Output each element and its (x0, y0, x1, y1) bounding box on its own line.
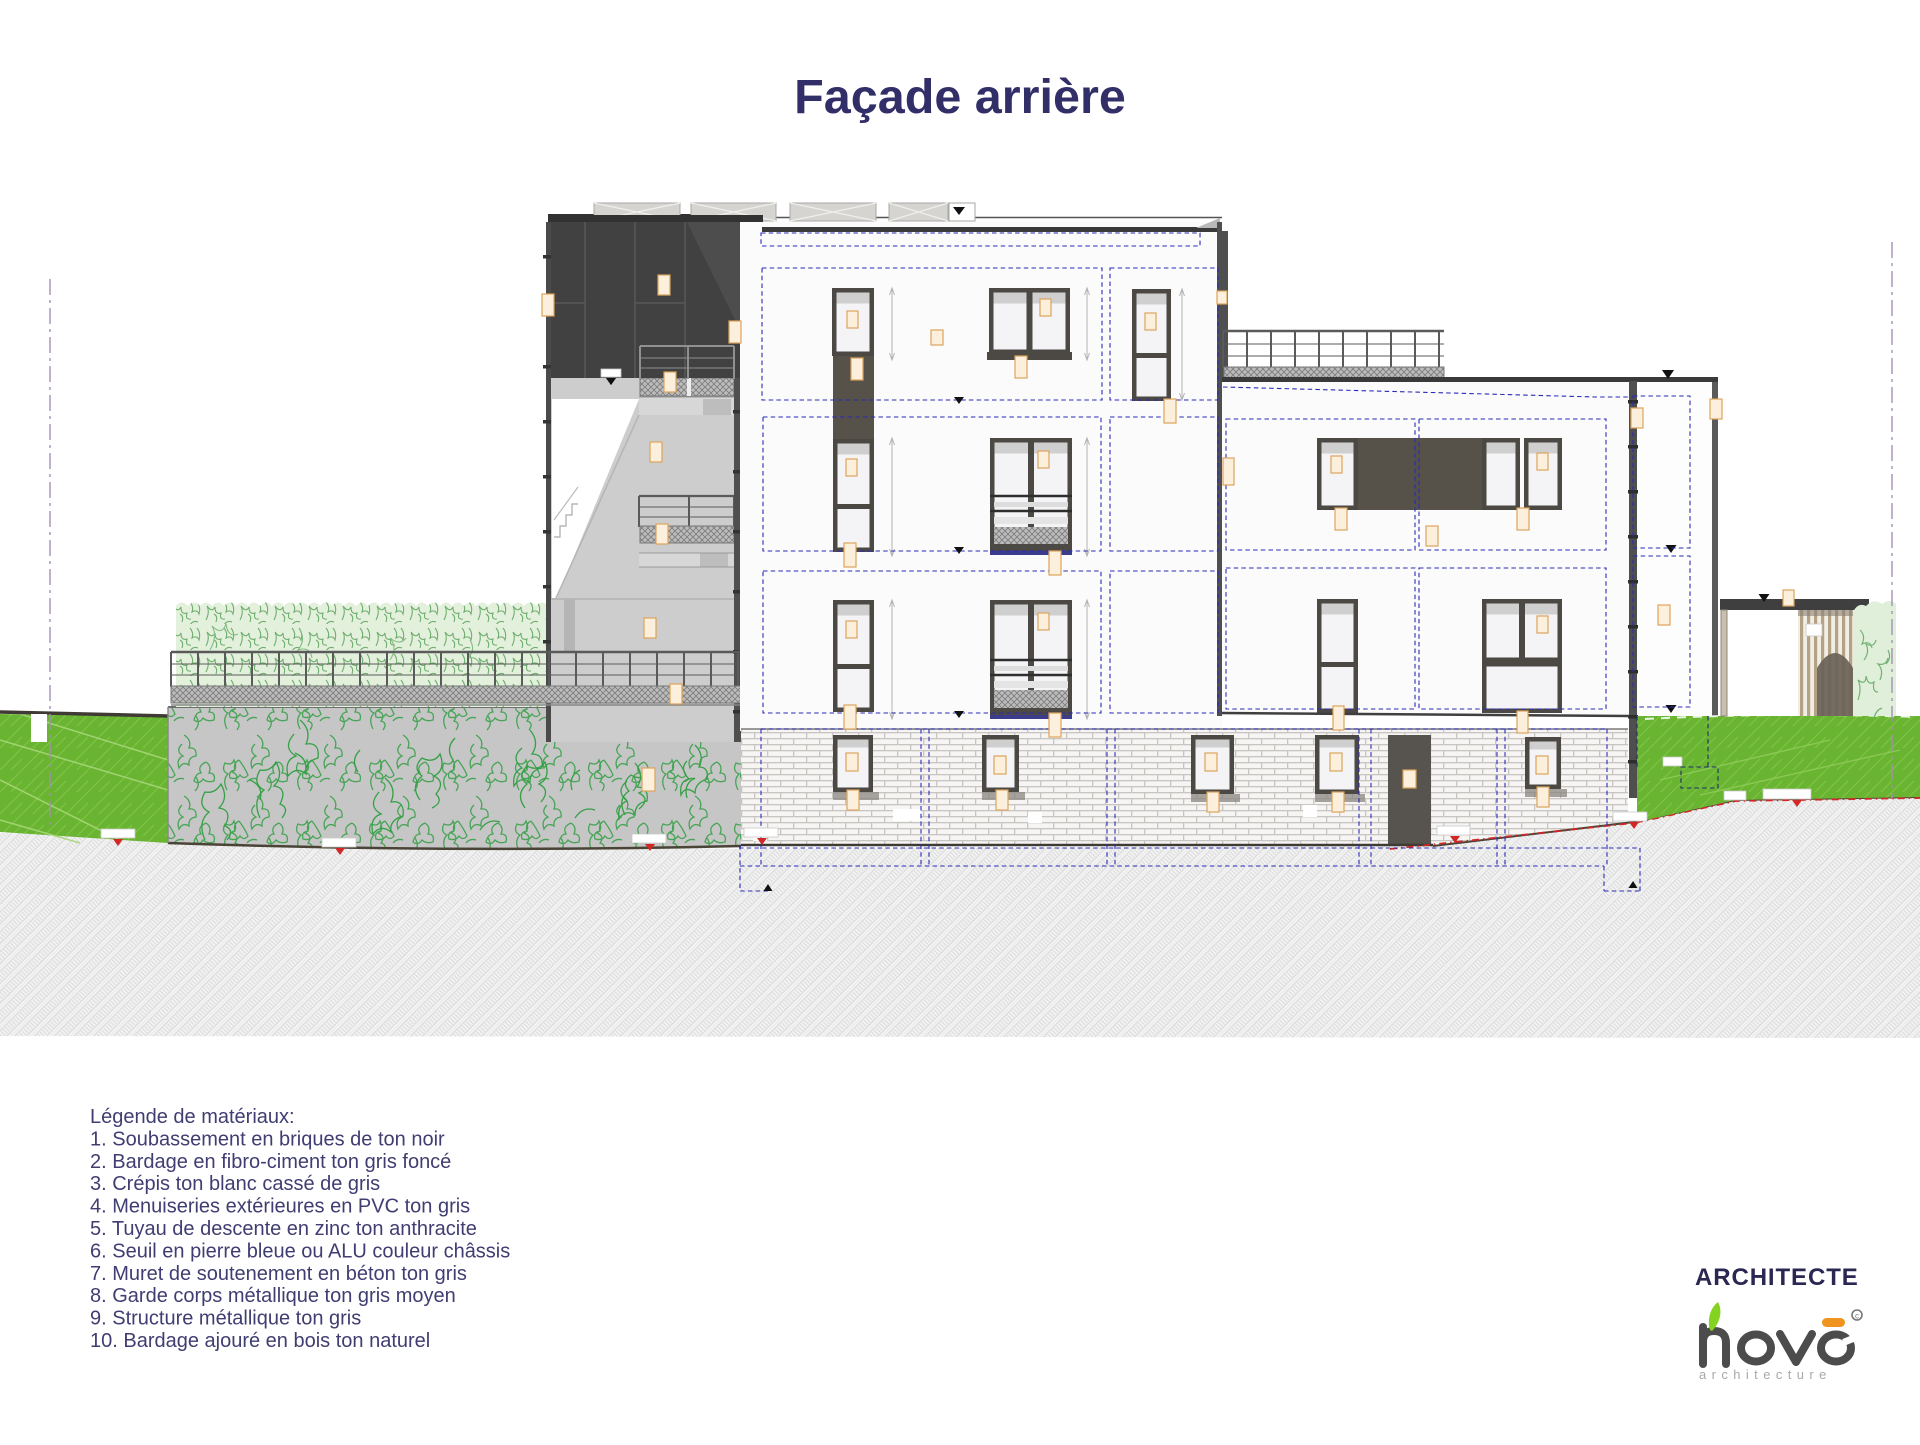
svg-text:7. Muret de soutenement en bét: 7. Muret de soutenement en béton ton gri… (90, 1263, 467, 1285)
svg-text:6. Seuil en pierre bleue ou AL: 6. Seuil en pierre bleue ou ALU couleur … (90, 1240, 510, 1262)
svg-text:5. Tuyau de descente en zinc t: 5. Tuyau de descente en zinc ton anthrac… (90, 1218, 477, 1240)
svg-text:10. Bardage ajouré en bois ton: 10. Bardage ajouré en bois ton naturel (90, 1330, 430, 1352)
svg-text:Légende de matériaux:: Légende de matériaux: (90, 1106, 295, 1128)
svg-text:4. Menuiseries extérieures en: 4. Menuiseries extérieures en PVC ton gr… (90, 1196, 470, 1218)
svg-text:2. Bardage en fibro-ciment ton: 2. Bardage en fibro-ciment ton gris fonc… (90, 1151, 451, 1173)
svg-text:8. Garde corps métallique ton: 8. Garde corps métallique ton gris moyen (90, 1285, 456, 1307)
svg-text:ARCHITECTE: ARCHITECTE (1695, 1264, 1859, 1291)
svg-text:9. Structure métallique ton gr: 9. Structure métallique ton gris (90, 1308, 361, 1330)
svg-text:Façade arrière: Façade arrière (794, 70, 1126, 124)
svg-text:c: c (1855, 1312, 1859, 1321)
svg-text:1. Soubassement en briques de: 1. Soubassement en briques de ton noir (90, 1128, 445, 1150)
svg-text:3. Crépis ton blanc cassé de g: 3. Crépis ton blanc cassé de gris (90, 1173, 380, 1195)
svg-text:architecture: architecture (1699, 1367, 1832, 1382)
